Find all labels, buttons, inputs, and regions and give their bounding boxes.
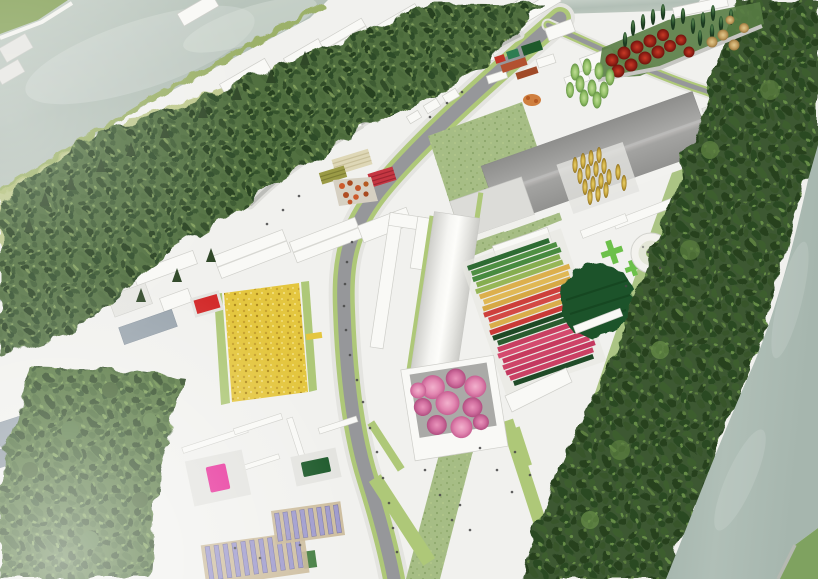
orange-shrub-plot [333, 177, 378, 206]
masterplan-rendering [0, 0, 818, 579]
scene-canvas [0, 0, 818, 579]
orange-grove-dot [523, 94, 541, 106]
blossom-roof-building [401, 355, 508, 461]
